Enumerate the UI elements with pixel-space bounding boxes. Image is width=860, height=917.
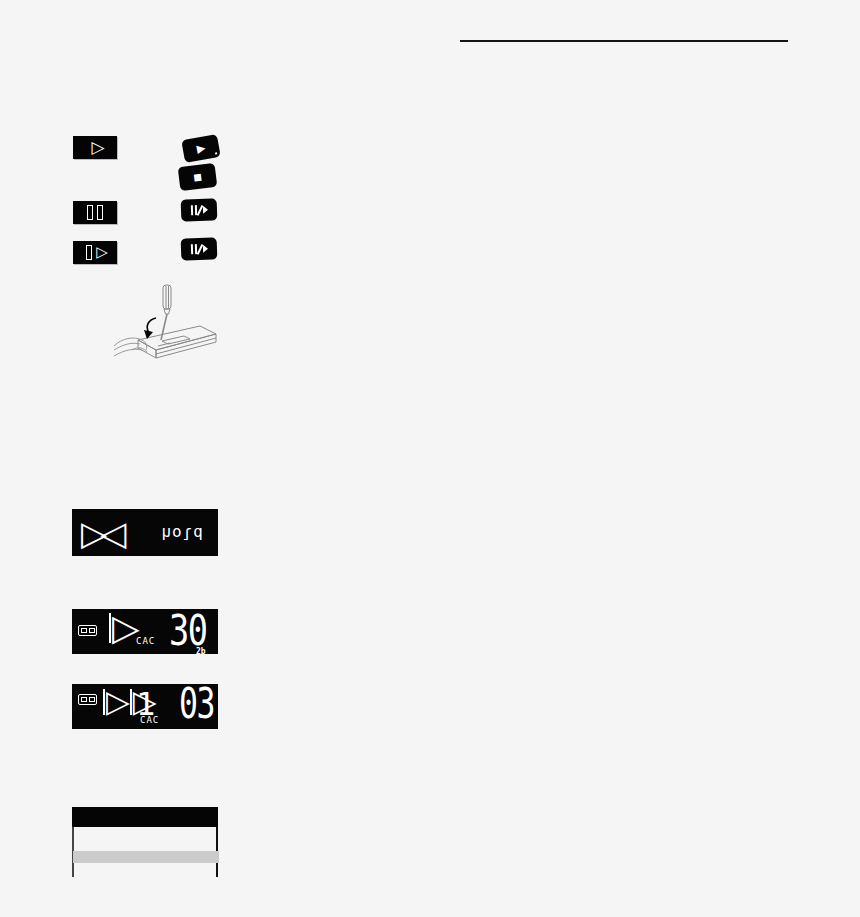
lcd-play-display: ▷ CAC 30 2b [72, 609, 218, 654]
lcd-counter-value: 30 [169, 616, 206, 646]
unit-play-key-icon: ▶ [181, 134, 220, 163]
lcd-counter-unit: 2b [196, 647, 206, 656]
lcd-mode-label: CAC [140, 715, 159, 725]
lcd-cue-display: ▷ ▷ 1 CAC 03 [72, 684, 218, 729]
play-button-icon: ▷ [73, 136, 117, 159]
unit-pause-play-key-icon [181, 237, 218, 260]
table-header-bar [72, 807, 218, 827]
cassette-icon [78, 694, 97, 705]
pause-bar-icon [191, 205, 193, 215]
pause-bar-icon [86, 245, 92, 260]
unit-stop-key-icon: ■ [178, 163, 218, 191]
play-filled-icon: ▶ [196, 141, 207, 155]
screwdriver-handle [163, 285, 171, 309]
lcd-mode-label: CAC [136, 636, 155, 646]
hand-device-illustration [112, 284, 232, 366]
press-arrow-icon [147, 318, 156, 333]
play-reverse-triangles-icon: ▷◁ [81, 516, 119, 550]
play-triangle-outline-icon: ▷ [94, 245, 108, 260]
pause-button-icon [73, 201, 117, 224]
key-dot-icon [215, 152, 217, 154]
pause-bar-icon [191, 244, 193, 254]
lcd-track-number: 1 [136, 691, 155, 717]
lcd-counter-value: 03 [179, 689, 214, 719]
stop-square-icon: ■ [193, 172, 203, 183]
hold-text-flipped: hold [161, 523, 204, 542]
manual-page: ▷ ▶ ■ ▷ [0, 0, 860, 917]
pause-bar-icon [87, 205, 93, 220]
table-row-band [73, 851, 219, 863]
play-arrow-icon [203, 245, 208, 253]
column-divider-rule [460, 40, 788, 42]
unit-pause-play-key-icon [181, 198, 218, 221]
pause-bar-icon [97, 205, 103, 220]
cassette-icon [78, 625, 97, 636]
play-triangle-outline-icon: ▷ [85, 139, 104, 156]
play-arrow-icon [203, 206, 208, 214]
pause-play-button-icon: ▷ [73, 241, 117, 264]
lcd-hold-display: ▷◁ hold [72, 509, 218, 556]
